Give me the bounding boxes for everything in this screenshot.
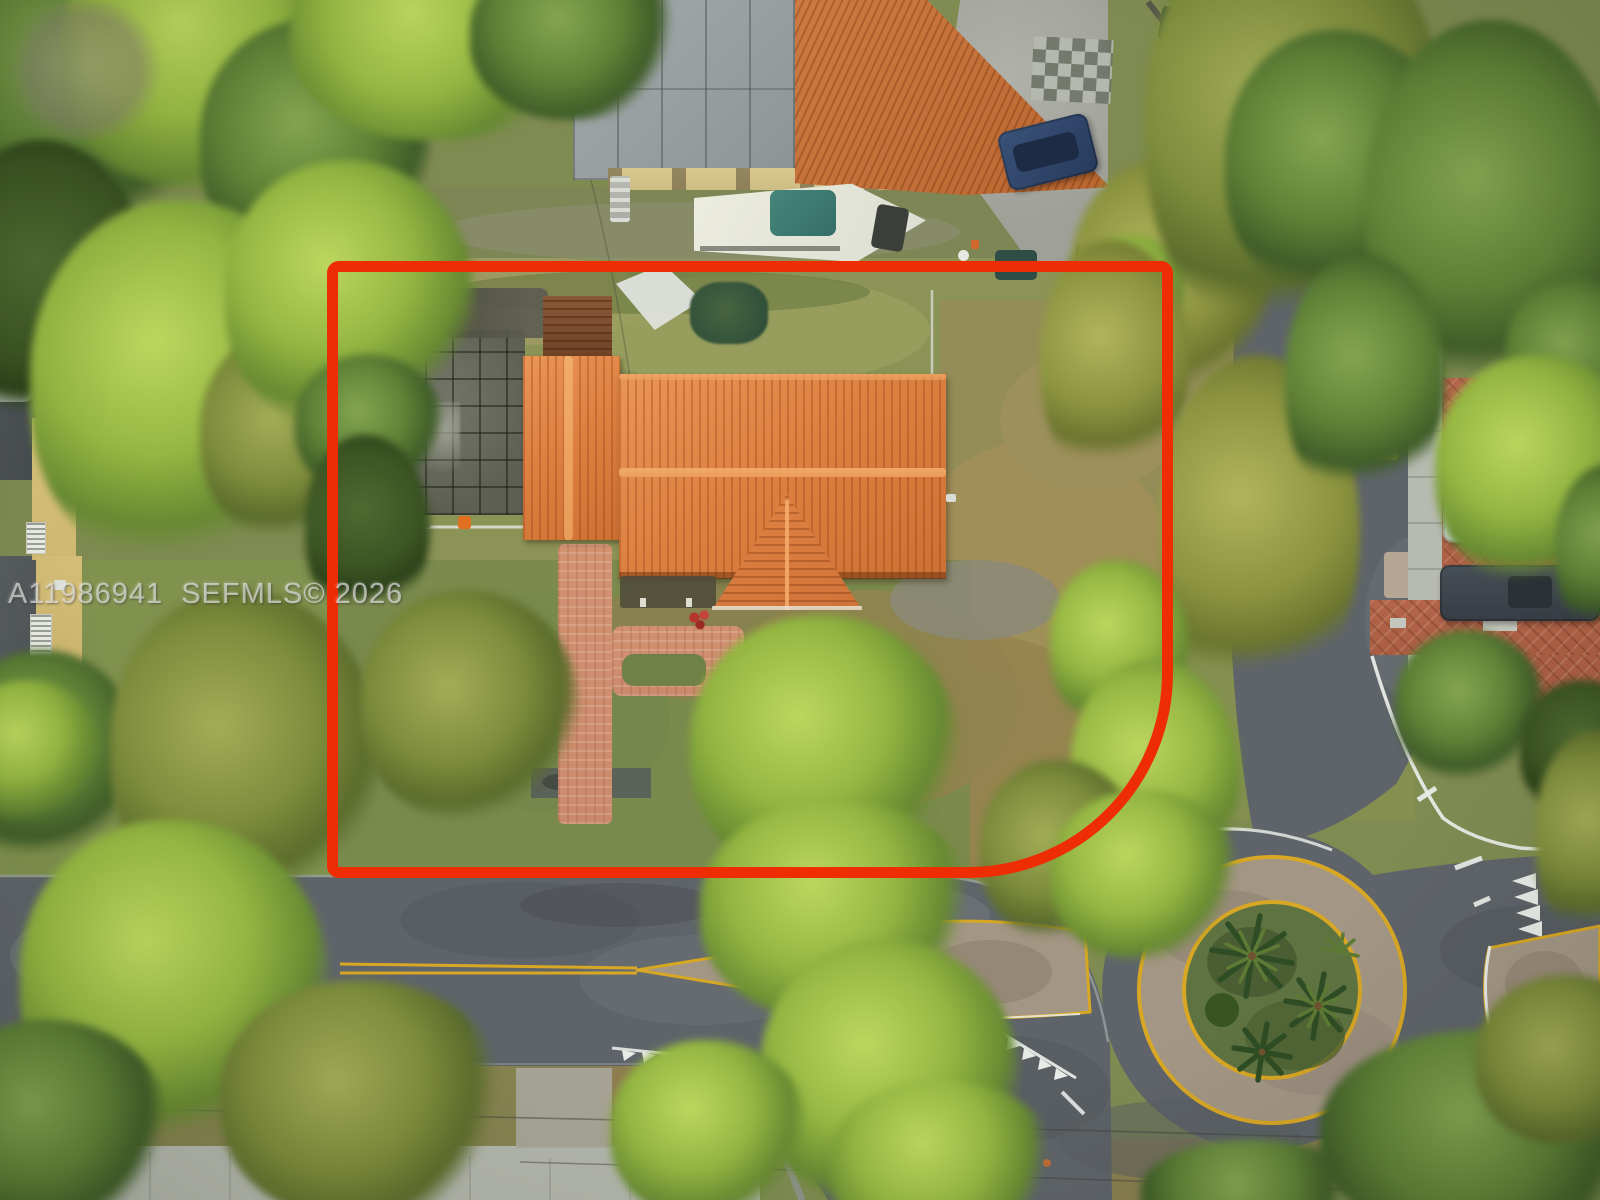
window-frame xyxy=(26,522,46,554)
sidewalk-slab xyxy=(1390,618,1406,628)
white-bucket xyxy=(958,250,969,261)
aerial-photo: A11986941 SEFMLS© 2026 xyxy=(0,0,1600,1200)
sidewalk-slab xyxy=(1483,620,1517,631)
shrub-icon xyxy=(1205,993,1239,1027)
orange-object xyxy=(971,240,979,249)
watermark-text: A11986941 SEFMLS© 2026 xyxy=(8,578,403,611)
boat-canvas xyxy=(770,190,836,236)
paver-checker-strip xyxy=(1030,36,1113,104)
property-boundary xyxy=(327,261,1173,878)
boat-trailer-bar xyxy=(700,246,840,251)
ladder-icon xyxy=(610,176,630,222)
bare-branches xyxy=(0,0,170,140)
tree-canopy xyxy=(1285,255,1445,505)
